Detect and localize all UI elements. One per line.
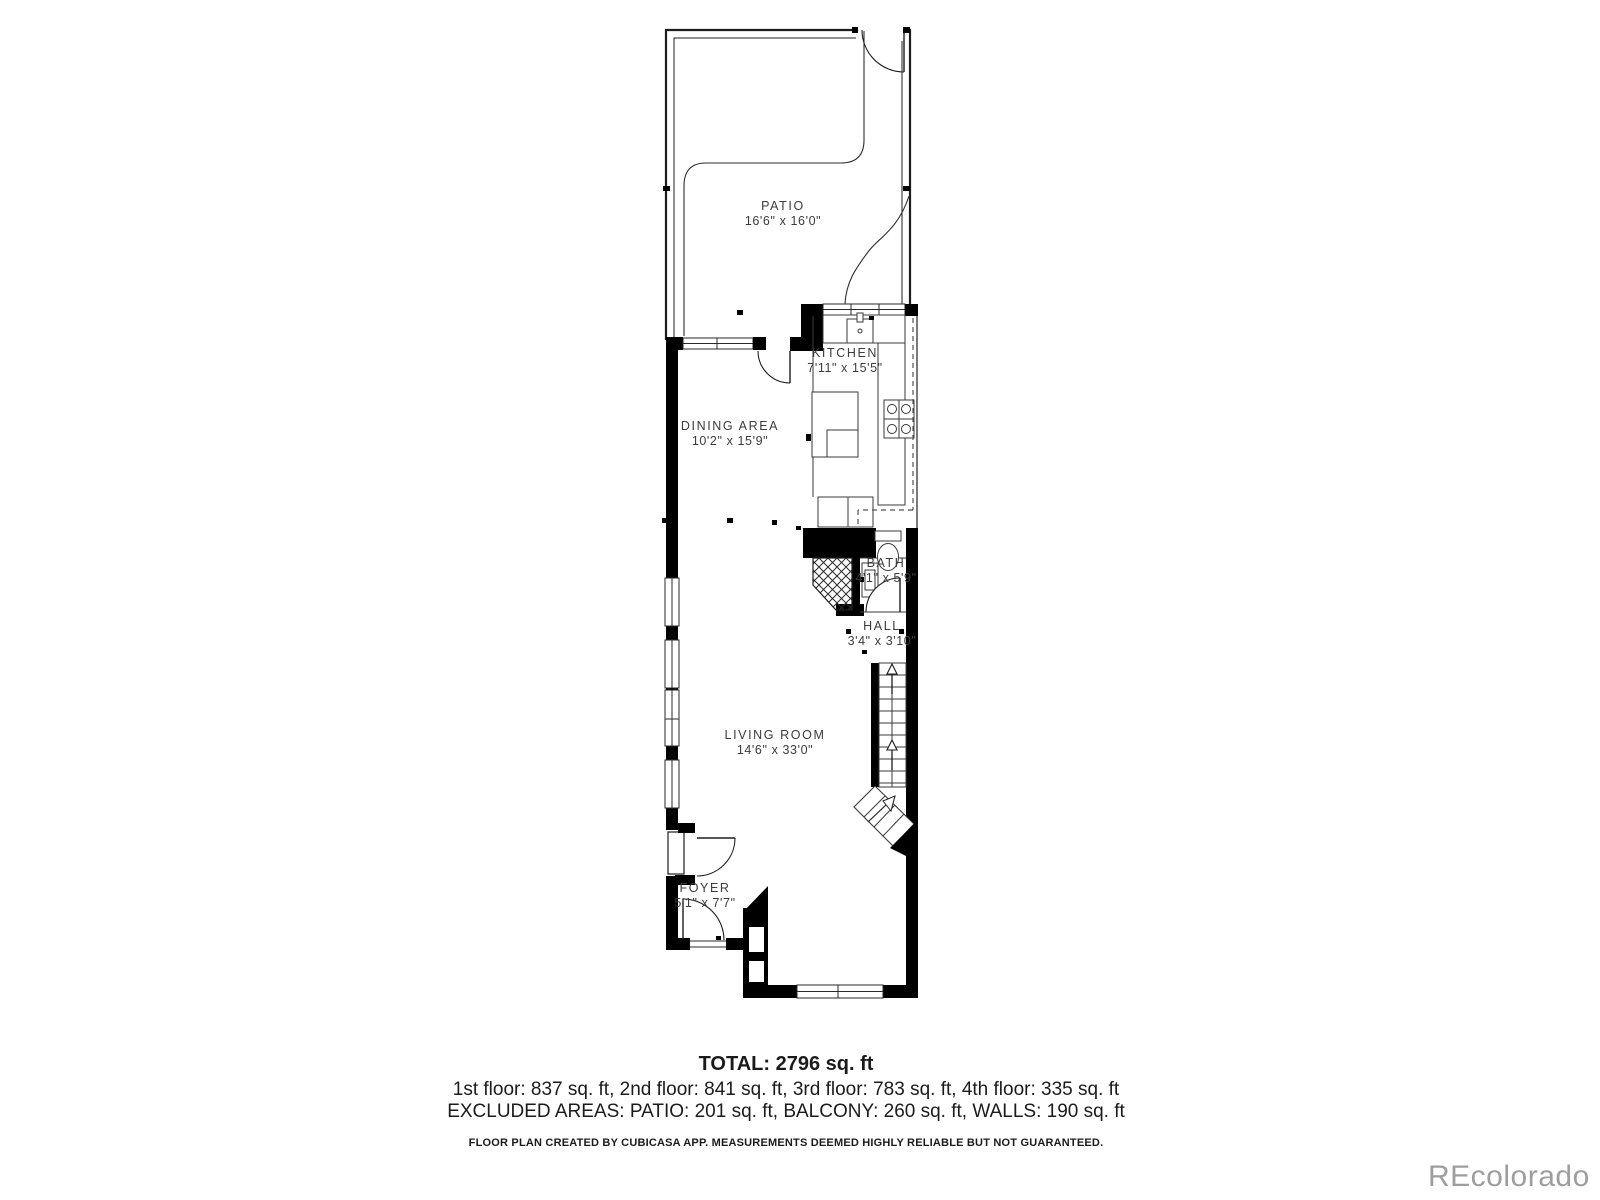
room-label-living-room: LIVING ROOM 14'6" x 33'0" — [725, 728, 826, 757]
room-name: KITCHEN — [807, 346, 882, 360]
floor-areas-text: 1st floor: 837 sq. ft, 2nd floor: 841 sq… — [0, 1079, 1572, 1101]
room-label-hall: HALL 3'4" x 3'10" — [848, 619, 917, 648]
room-name: FOYER — [674, 881, 735, 895]
room-dims: 5'1" x 7'7" — [674, 896, 735, 910]
kitchen-island — [806, 392, 858, 457]
room-name: LIVING ROOM — [725, 728, 826, 742]
room-dims: 14'6" x 33'0" — [725, 743, 826, 757]
disclaimer-text: FLOOR PLAN CREATED BY CUBICASA APP. MEAS… — [0, 1137, 1572, 1149]
room-name: HALL — [848, 619, 917, 633]
patio-door — [852, 24, 910, 72]
under-stair-hatch — [813, 558, 852, 610]
room-dims: 16'6" x 16'0" — [745, 214, 821, 228]
stove — [884, 400, 914, 438]
patio-curved-edge — [684, 31, 909, 336]
room-label-foyer: FOYER 5'1" x 7'7" — [674, 881, 735, 910]
room-label-bath: BATH 4'1" x 5'9" — [855, 556, 916, 585]
ceiling-marks — [662, 518, 801, 530]
excluded-areas-text: EXCLUDED AREAS: PATIO: 201 sq. ft, BALCO… — [0, 1101, 1572, 1123]
room-name: BATH — [855, 556, 916, 570]
floor-plan-drawing — [0, 0, 1600, 1200]
room-dims: 3'4" x 3'10" — [848, 634, 917, 648]
room-dims: 4'1" x 5'9" — [855, 571, 916, 585]
room-dims: 10'2" x 15'9" — [681, 434, 779, 448]
patio-walls — [666, 30, 910, 340]
total-area-text: TOTAL: 2796 sq. ft — [0, 1053, 1572, 1076]
room-dims: 7'11" x 15'5" — [807, 361, 882, 375]
floor-plan-page: PATIO 16'6" x 16'0" KITCHEN 7'11" x 15'5… — [0, 0, 1600, 1200]
recolorado-watermark: REcolorado — [1428, 1160, 1590, 1194]
room-label-dining-area: DINING AREA 10'2" x 15'9" — [681, 419, 779, 448]
dining-patio-door — [758, 351, 790, 383]
room-label-patio: PATIO 16'6" x 16'0" — [745, 199, 821, 228]
room-label-kitchen: KITCHEN 7'11" x 15'5" — [807, 346, 882, 375]
room-name: DINING AREA — [681, 419, 779, 433]
room-name: PATIO — [745, 199, 821, 213]
